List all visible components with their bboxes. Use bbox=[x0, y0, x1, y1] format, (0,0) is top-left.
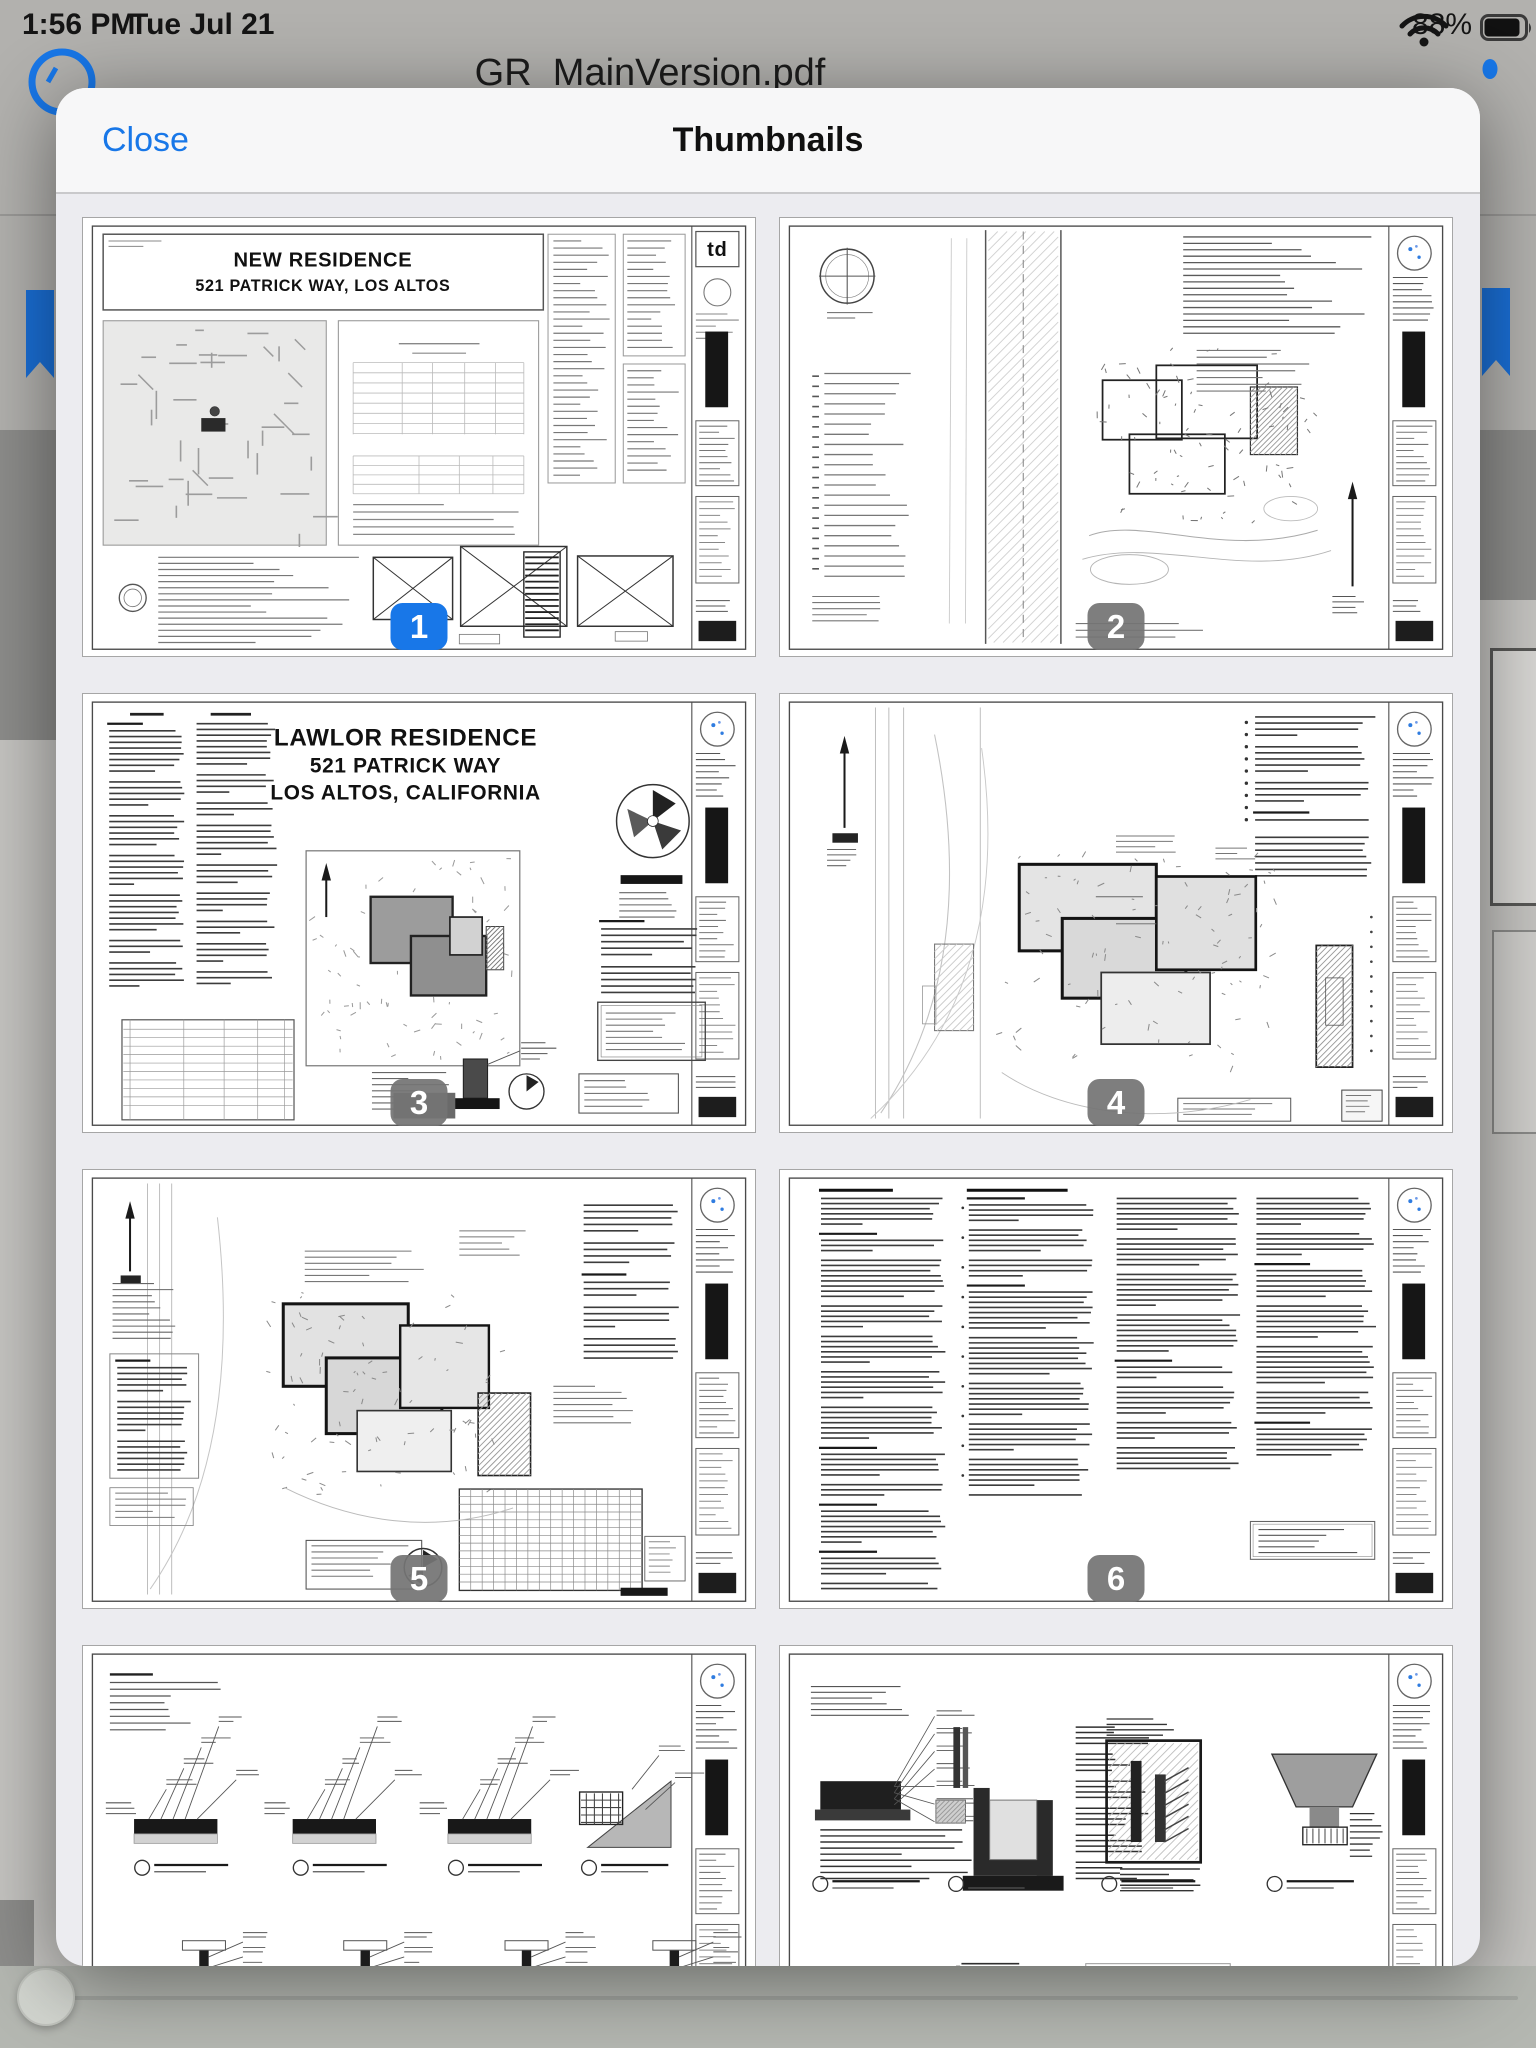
modal-header: Close Thumbnails bbox=[56, 88, 1480, 194]
page-number-badge: 6 bbox=[1088, 1555, 1145, 1602]
page-number-badge: 1 bbox=[391, 603, 448, 650]
thumbnail-page-7[interactable] bbox=[82, 1645, 756, 1966]
more-dot-icon bbox=[1481, 58, 1499, 80]
status-date: Tue Jul 21 bbox=[130, 8, 275, 42]
sidebar-panel-item bbox=[1492, 930, 1536, 1134]
thumbnail-page-4[interactable]: 4 bbox=[779, 693, 1453, 1133]
thumbnail-page-1[interactable]: tdNEW RESIDENCE521 PATRICK WAY, LOS ALTO… bbox=[82, 217, 756, 657]
bookmark-icon-left bbox=[26, 290, 54, 378]
svg-text:LOS ALTOS, CALIFORNIA: LOS ALTOS, CALIFORNIA bbox=[270, 781, 540, 804]
thumbnails-modal: Close Thumbnails tdNEW RESIDENCE521 PATR… bbox=[56, 88, 1480, 1966]
bookmark-icon-right bbox=[1482, 288, 1510, 376]
battery-icon bbox=[1480, 14, 1534, 42]
pdf-content-corner bbox=[0, 1900, 34, 1966]
page-number-badge: 2 bbox=[1088, 603, 1145, 650]
thumbnail-page-5[interactable]: 5 bbox=[82, 1169, 756, 1609]
page-number-badge: 3 bbox=[391, 1079, 448, 1126]
thumbnail-page-8[interactable] bbox=[779, 1645, 1453, 1966]
close-button[interactable]: Close bbox=[102, 121, 189, 160]
bottom-toolbar bbox=[0, 1966, 1536, 2048]
thumbnail-page-3[interactable]: LAWLOR RESIDENCE521 PATRICK WAYLOS ALTOS… bbox=[82, 693, 756, 1133]
svg-text:NEW RESIDENCE: NEW RESIDENCE bbox=[233, 250, 412, 272]
status-time: 1:56 PM bbox=[22, 8, 135, 42]
thumbnail-page-2[interactable]: 2 bbox=[779, 217, 1453, 657]
page-scrubber-thumb[interactable] bbox=[17, 1968, 75, 2026]
page-scrubber-track[interactable] bbox=[44, 1996, 1518, 2000]
svg-text:LAWLOR RESIDENCE: LAWLOR RESIDENCE bbox=[274, 724, 537, 751]
sidebar-panel-item bbox=[1490, 648, 1536, 906]
svg-text:521 PATRICK WAY, LOS ALTOS: 521 PATRICK WAY, LOS ALTOS bbox=[195, 277, 450, 295]
modal-title: Thumbnails bbox=[56, 121, 1480, 160]
battery-percent: 88% bbox=[1412, 8, 1472, 42]
svg-text:521 PATRICK WAY: 521 PATRICK WAY bbox=[310, 754, 501, 777]
svg-text:td: td bbox=[707, 239, 727, 261]
thumbnail-grid[interactable]: tdNEW RESIDENCE521 PATRICK WAY, LOS ALTO… bbox=[56, 194, 1480, 1966]
page-number-badge: 4 bbox=[1088, 1079, 1145, 1126]
thumbnail-page-6[interactable]: 6 bbox=[779, 1169, 1453, 1609]
page-number-badge: 5 bbox=[391, 1555, 448, 1602]
